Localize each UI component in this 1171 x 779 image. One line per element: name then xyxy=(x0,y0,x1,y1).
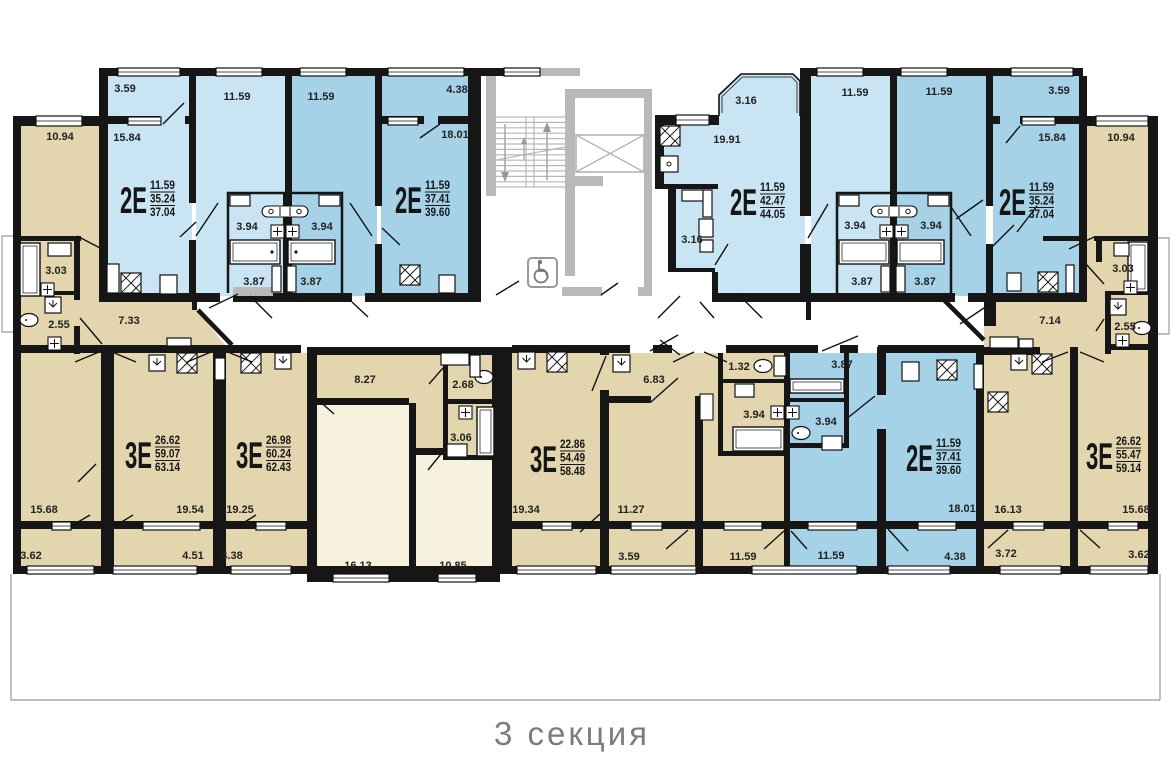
svg-text:3.62: 3.62 xyxy=(20,550,41,562)
svg-text:10.94: 10.94 xyxy=(46,131,74,143)
svg-text:11.59: 11.59 xyxy=(818,550,845,562)
svg-text:3.16: 3.16 xyxy=(681,234,702,246)
svg-text:3.59: 3.59 xyxy=(618,551,639,563)
svg-text:3.94: 3.94 xyxy=(844,220,866,232)
svg-text:4.38: 4.38 xyxy=(944,551,965,563)
svg-text:3.16: 3.16 xyxy=(735,95,756,107)
svg-text:19.91: 19.91 xyxy=(713,134,741,146)
svg-text:3.94: 3.94 xyxy=(815,416,837,428)
svg-text:58.48: 58.48 xyxy=(560,466,586,478)
svg-text:37.04: 37.04 xyxy=(150,207,176,219)
svg-text:15.68: 15.68 xyxy=(1122,504,1150,516)
svg-text:3.94: 3.94 xyxy=(236,221,258,233)
svg-text:3.87: 3.87 xyxy=(914,276,935,288)
svg-text:2Е: 2Е xyxy=(906,438,933,479)
svg-text:18.01: 18.01 xyxy=(441,129,469,141)
svg-text:59.14: 59.14 xyxy=(1116,463,1142,475)
svg-text:8.27: 8.27 xyxy=(354,374,375,386)
svg-text:26.62: 26.62 xyxy=(155,435,180,447)
svg-text:3.59: 3.59 xyxy=(1048,85,1069,97)
svg-text:3.72: 3.72 xyxy=(995,548,1016,560)
svg-text:7.14: 7.14 xyxy=(1039,315,1061,327)
svg-text:2Е: 2Е xyxy=(999,182,1026,223)
svg-text:2.55: 2.55 xyxy=(1114,321,1135,333)
svg-text:3Е: 3Е xyxy=(236,435,263,476)
svg-text:54.49: 54.49 xyxy=(560,453,585,465)
svg-text:11.59: 11.59 xyxy=(425,180,450,192)
svg-text:3.03: 3.03 xyxy=(1112,263,1133,275)
svg-text:37.41: 37.41 xyxy=(936,452,962,464)
svg-text:3Е: 3Е xyxy=(125,435,152,476)
svg-text:62.43: 62.43 xyxy=(266,462,291,474)
svg-text:3.94: 3.94 xyxy=(920,220,942,232)
svg-text:11.59: 11.59 xyxy=(224,91,251,103)
svg-text:19.54: 19.54 xyxy=(176,504,204,516)
svg-text:11.27: 11.27 xyxy=(618,504,645,516)
svg-text:3Е: 3Е xyxy=(530,439,557,480)
svg-text:26.62: 26.62 xyxy=(1116,436,1141,448)
svg-text:19.34: 19.34 xyxy=(512,504,540,516)
svg-text:63.14: 63.14 xyxy=(155,462,181,474)
svg-text:39.60: 39.60 xyxy=(936,465,961,477)
svg-text:35.24: 35.24 xyxy=(150,194,176,206)
svg-text:2Е: 2Е xyxy=(395,180,422,221)
svg-text:3.03: 3.03 xyxy=(45,265,66,277)
svg-text:4.38: 4.38 xyxy=(221,550,242,562)
svg-text:44.05: 44.05 xyxy=(760,209,786,221)
svg-text:11.59: 11.59 xyxy=(842,87,869,99)
svg-text:2Е: 2Е xyxy=(120,180,147,221)
svg-text:2.55: 2.55 xyxy=(48,319,69,331)
svg-text:15.84: 15.84 xyxy=(1038,132,1066,144)
svg-text:26.98: 26.98 xyxy=(266,435,292,447)
svg-text:18.01: 18.01 xyxy=(948,503,976,515)
svg-text:3.62: 3.62 xyxy=(1128,549,1149,561)
svg-text:2.68: 2.68 xyxy=(452,379,473,391)
svg-text:3.94: 3.94 xyxy=(311,221,333,233)
svg-text:55.47: 55.47 xyxy=(1116,450,1141,462)
svg-text:3.87: 3.87 xyxy=(831,359,852,371)
svg-text:11.59: 11.59 xyxy=(308,91,335,103)
svg-text:42.47: 42.47 xyxy=(760,196,785,208)
svg-text:4.38: 4.38 xyxy=(446,84,467,96)
svg-text:3.87: 3.87 xyxy=(300,276,321,288)
svg-text:11.59: 11.59 xyxy=(1029,182,1054,194)
svg-text:15.84: 15.84 xyxy=(113,132,141,144)
svg-text:11.59: 11.59 xyxy=(730,551,757,563)
svg-text:1.32: 1.32 xyxy=(728,361,749,373)
svg-text:11.59: 11.59 xyxy=(936,438,961,450)
svg-text:10.85: 10.85 xyxy=(439,560,467,572)
svg-text:16.13: 16.13 xyxy=(994,504,1022,516)
svg-text:59.07: 59.07 xyxy=(155,449,180,461)
svg-text:3 секция: 3 секция xyxy=(494,715,650,752)
svg-text:37.04: 37.04 xyxy=(1029,209,1055,221)
svg-text:39.60: 39.60 xyxy=(425,207,450,219)
svg-text:7.33: 7.33 xyxy=(118,315,139,327)
svg-text:15.68: 15.68 xyxy=(30,504,58,516)
svg-text:11.59: 11.59 xyxy=(926,86,953,98)
svg-text:3Е: 3Е xyxy=(1086,436,1113,477)
svg-text:60.24: 60.24 xyxy=(266,449,292,461)
svg-text:3.87: 3.87 xyxy=(243,276,264,288)
svg-text:10.94: 10.94 xyxy=(1107,132,1135,144)
svg-text:22.86: 22.86 xyxy=(560,439,585,451)
svg-text:3.94: 3.94 xyxy=(743,409,765,421)
svg-text:4.51: 4.51 xyxy=(182,550,203,562)
svg-text:11.59: 11.59 xyxy=(150,180,175,192)
svg-text:37.41: 37.41 xyxy=(425,194,451,206)
svg-text:16.13: 16.13 xyxy=(344,560,372,572)
svg-text:35.24: 35.24 xyxy=(1029,196,1055,208)
svg-text:2Е: 2Е xyxy=(730,182,757,223)
svg-text:3.06: 3.06 xyxy=(450,432,471,444)
svg-text:6.83: 6.83 xyxy=(643,374,664,386)
svg-text:3.87: 3.87 xyxy=(851,276,872,288)
svg-text:19.25: 19.25 xyxy=(226,504,254,516)
svg-text:11.59: 11.59 xyxy=(760,182,785,194)
svg-text:3.59: 3.59 xyxy=(114,83,135,95)
